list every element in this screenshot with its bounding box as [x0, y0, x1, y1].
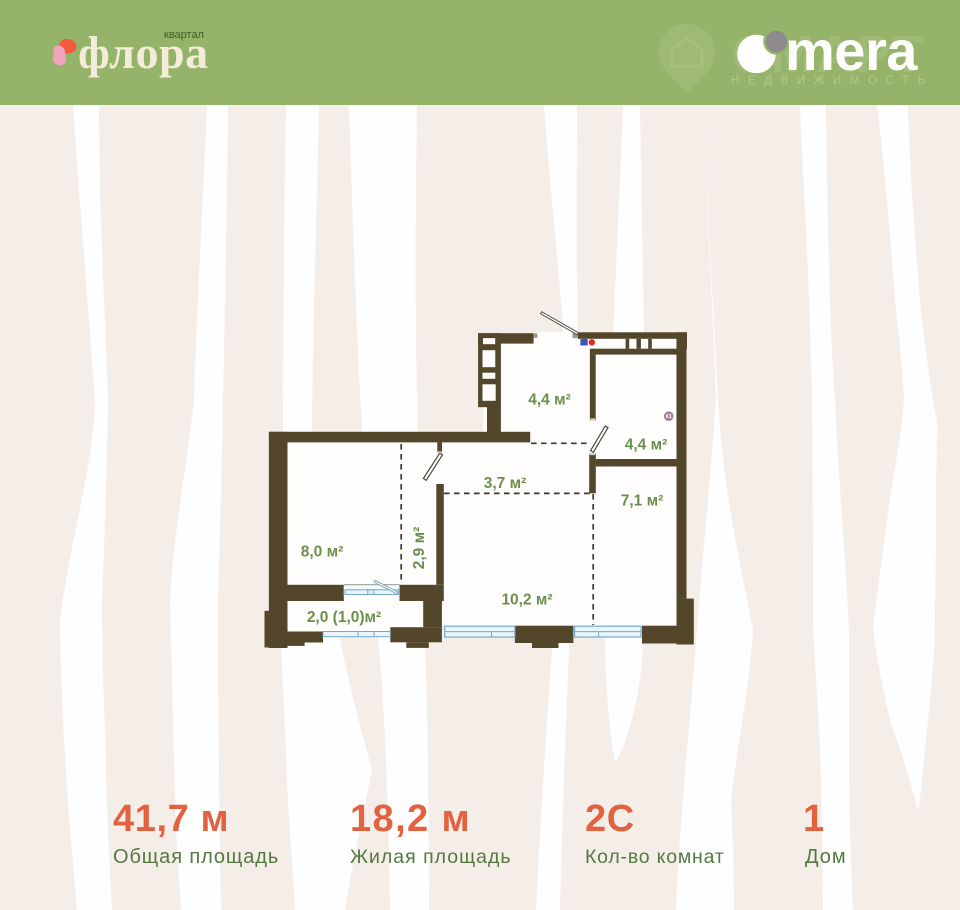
- svg-text:НЕДВИЖИМОСТЬ: НЕДВИЖИМОСТЬ: [731, 75, 934, 87]
- svg-text:Жилая площадь: Жилая площадь: [350, 846, 512, 868]
- svg-text:К1: К1: [666, 414, 672, 420]
- svg-text:2,0 (1,0)м²: 2,0 (1,0)м²: [307, 609, 381, 626]
- svg-text:18,2 м: 18,2 м: [350, 798, 471, 840]
- svg-text:4,4 м²: 4,4 м²: [528, 392, 570, 409]
- svg-text:1: 1: [803, 798, 825, 840]
- svg-text:mera: mera: [785, 19, 918, 82]
- svg-text:8,0 м²: 8,0 м²: [301, 544, 343, 561]
- svg-text:41,7 м: 41,7 м: [113, 798, 229, 840]
- svg-text:10,2 м²: 10,2 м²: [501, 592, 552, 609]
- svg-text:4,4 м²: 4,4 м²: [625, 437, 667, 454]
- svg-text:квартал: квартал: [164, 29, 204, 41]
- svg-text:2,9 м²: 2,9 м²: [411, 527, 428, 569]
- svg-text:3,7 м²: 3,7 м²: [484, 475, 526, 492]
- svg-text:Дом: Дом: [805, 846, 847, 868]
- svg-text:Кол-во комнат: Кол-во комнат: [585, 846, 725, 868]
- svg-text:7,1 м²: 7,1 м²: [621, 493, 663, 510]
- svg-text:2С: 2С: [585, 798, 635, 840]
- svg-text:Общая площадь: Общая площадь: [113, 846, 279, 868]
